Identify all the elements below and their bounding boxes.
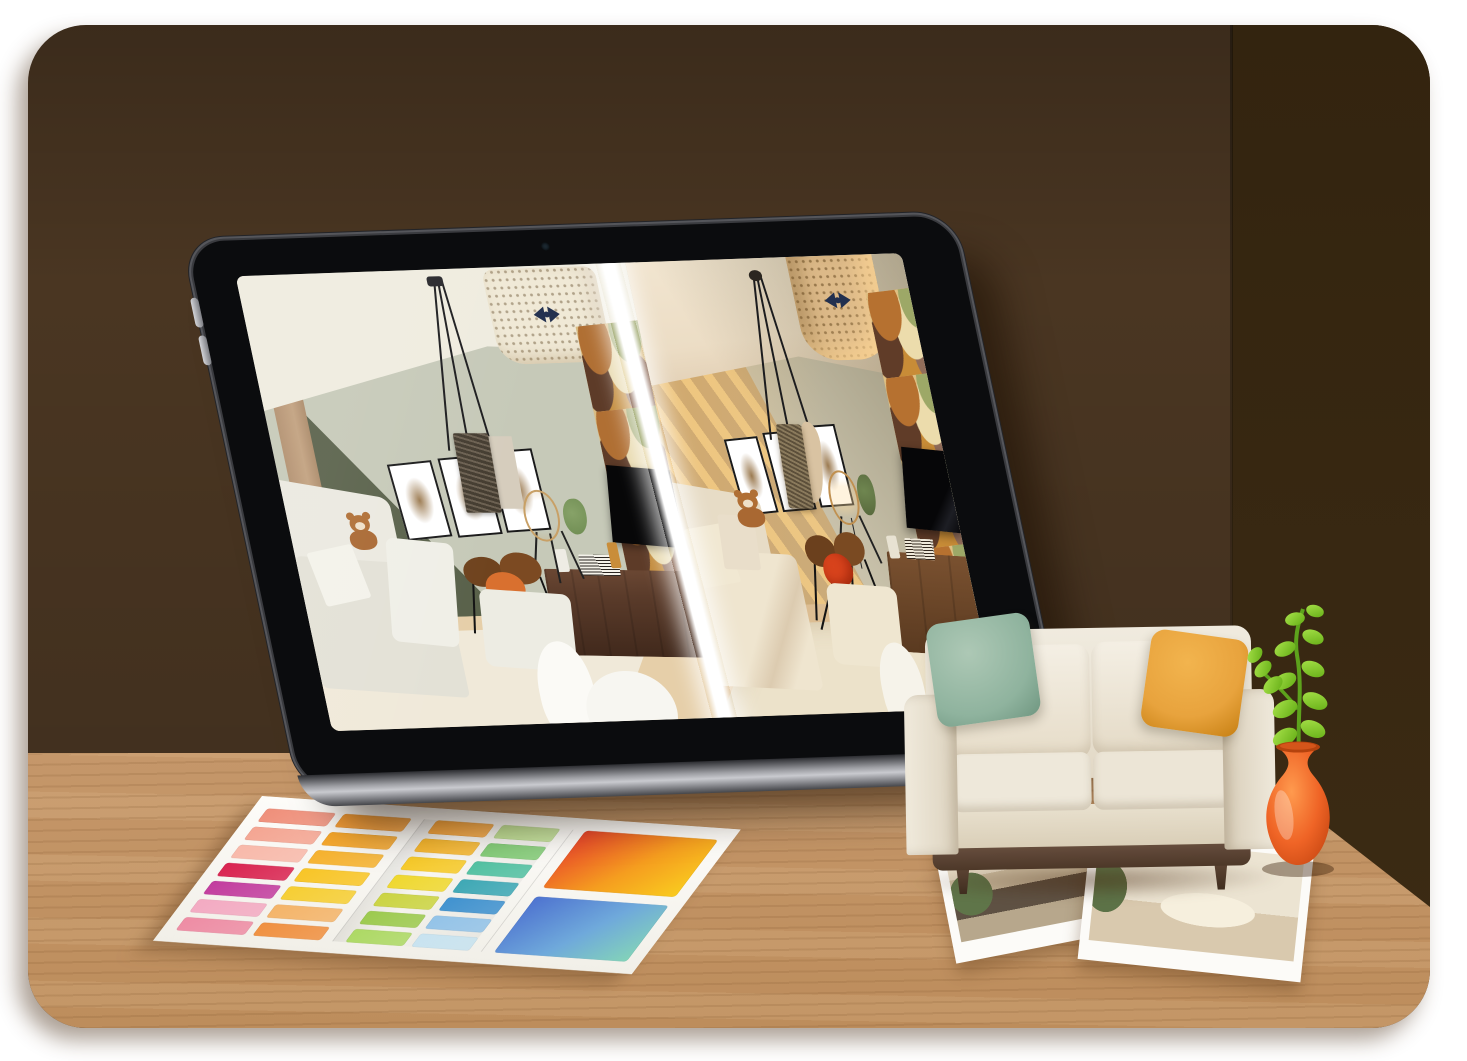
color-swatch [413, 838, 481, 855]
wall-tv [901, 447, 963, 534]
potted-plant [559, 498, 590, 535]
color-swatch [252, 922, 330, 940]
color-swatch [189, 899, 267, 917]
color-swatch [265, 904, 343, 922]
color-swatch [493, 825, 561, 842]
book-stack [904, 538, 935, 560]
color-swatch [176, 917, 254, 935]
color-swatch [320, 832, 398, 850]
color-swatch [279, 886, 357, 904]
color-swatch [216, 863, 294, 881]
bow-ornament [823, 292, 852, 309]
ceiling-mount [426, 276, 444, 287]
color-swatch [425, 915, 493, 932]
wire-sphere-floor-lamp [519, 490, 565, 543]
color-swatch [438, 897, 506, 914]
scene-card [28, 25, 1430, 1028]
gradient-tile-warm [543, 831, 718, 897]
color-swatch [452, 879, 520, 896]
green-throw-pillow [925, 611, 1042, 728]
vase-with-plant [1233, 597, 1363, 887]
color-swatch [306, 850, 384, 868]
color-swatch [334, 814, 412, 832]
sofa-seat-cushion [1093, 750, 1232, 810]
vase-plant-graphic [1233, 597, 1363, 887]
gradient-tile-cool [494, 896, 669, 962]
color-swatch [411, 933, 479, 950]
color-swatch [359, 911, 427, 928]
color-swatch [427, 820, 495, 837]
color-swatch [372, 893, 440, 910]
sofa [903, 625, 1278, 897]
color-swatch [479, 843, 547, 860]
tablet-screen[interactable] [236, 253, 998, 731]
color-swatch [400, 856, 468, 873]
color-swatch [203, 881, 281, 899]
front-camera [541, 242, 551, 250]
botanical-art [397, 472, 443, 530]
sofa-armrest-2d [385, 537, 460, 648]
color-swatch [244, 826, 322, 844]
color-swatch [293, 868, 371, 886]
color-swatch [386, 875, 454, 892]
color-swatch [466, 861, 534, 878]
sofa-seat-cushion [951, 752, 1092, 812]
bow-ornament [532, 306, 561, 323]
color-swatch [230, 845, 308, 863]
color-swatch [345, 929, 413, 946]
design-app-promo-scene [0, 0, 1467, 1061]
color-swatch [257, 808, 335, 826]
